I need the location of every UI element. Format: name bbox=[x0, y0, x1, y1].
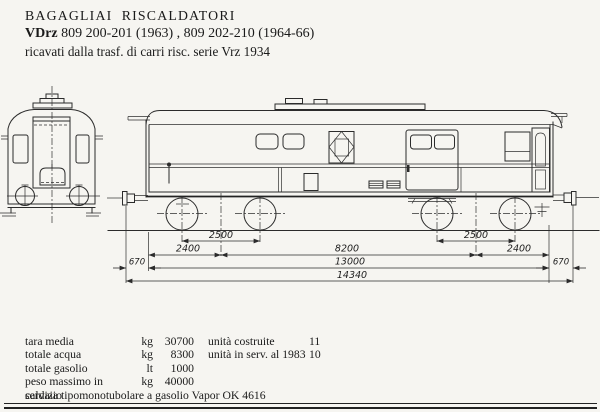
right-buffer bbox=[553, 192, 599, 206]
roof-walkway bbox=[275, 99, 425, 110]
spec-value: 10 bbox=[309, 348, 339, 361]
boiler-note: caldaia tipomonotubolare a gasolio Vapor… bbox=[25, 389, 585, 402]
spec-unit: lt bbox=[140, 362, 153, 375]
boiler-chimney bbox=[33, 94, 72, 108]
dim-pivot-to-end-right: 2400 bbox=[507, 244, 531, 255]
dim-bogie-wheelbase-left: 2500 bbox=[209, 230, 233, 241]
left-buffer bbox=[107, 192, 148, 206]
boiler-vent bbox=[329, 132, 354, 164]
side-view bbox=[107, 99, 599, 258]
end-roof bbox=[8, 110, 95, 130]
waist-lines bbox=[149, 164, 550, 168]
dim-pivot-spacing: 8200 bbox=[335, 244, 359, 255]
dim-buffer-right: 670 bbox=[553, 258, 569, 268]
bottom-rule bbox=[4, 403, 597, 409]
spec-label: totale acqua bbox=[25, 348, 140, 361]
spec-value: 8300 bbox=[153, 348, 194, 361]
end-rails bbox=[0, 208, 101, 217]
spec-unit: kg bbox=[140, 375, 153, 388]
spec-label: totale gasolio bbox=[25, 362, 140, 375]
scanned-page: { "header": { "title": "BAGAGLIAI RISCAL… bbox=[0, 0, 600, 412]
dim-body-length: 13000 bbox=[335, 257, 365, 268]
jack-point-symbol bbox=[535, 203, 550, 217]
dim-buffer-left: 670 bbox=[129, 258, 145, 268]
side-window-3 bbox=[505, 132, 530, 161]
spec-value: 30700 bbox=[153, 335, 194, 348]
side-window-1 bbox=[256, 134, 278, 149]
end-doorway bbox=[33, 117, 70, 188]
spec-table: tara media kg 30700 unità costruite 11 t… bbox=[25, 335, 585, 402]
sliding-door bbox=[406, 130, 458, 190]
tank-outline bbox=[40, 162, 65, 185]
spec-row: peso massimo in servizio kg 40000 bbox=[25, 375, 585, 388]
dimension-lines: 2500 2500 2400 8200 2400 670 13000 670 1… bbox=[113, 205, 586, 283]
spec-label: unità costruite bbox=[208, 335, 309, 348]
spec-value: 40000 bbox=[153, 375, 194, 388]
dim-bogie-wheelbase-right: 2500 bbox=[464, 230, 488, 241]
louvre-vents bbox=[369, 181, 400, 188]
spec-label: tara media bbox=[25, 335, 140, 348]
dim-pivot-to-end-left: 2400 bbox=[176, 244, 200, 255]
spec-label: unità in serv. al 1983 bbox=[208, 348, 309, 361]
end-window-right bbox=[76, 135, 89, 163]
spec-value: 1000 bbox=[153, 362, 194, 375]
door-handle bbox=[407, 165, 410, 172]
spec-unit: kg bbox=[140, 335, 153, 348]
handrail bbox=[167, 163, 171, 184]
end-door bbox=[532, 128, 550, 192]
dim-total-length: 14340 bbox=[337, 270, 367, 281]
spec-row: tara media kg 30700 unità costruite 11 bbox=[25, 335, 585, 348]
end-window-left bbox=[13, 135, 28, 163]
equipment-box bbox=[304, 174, 318, 191]
side-window-2 bbox=[283, 134, 304, 149]
end-view bbox=[0, 86, 103, 224]
cant-rail bbox=[149, 125, 562, 129]
spec-value: 11 bbox=[309, 335, 339, 348]
spec-unit: kg bbox=[140, 348, 153, 361]
spec-row: totale gasolio lt 1000 bbox=[25, 362, 585, 375]
spec-row: totale acqua kg 8300 unità in serv. al 1… bbox=[25, 348, 585, 361]
